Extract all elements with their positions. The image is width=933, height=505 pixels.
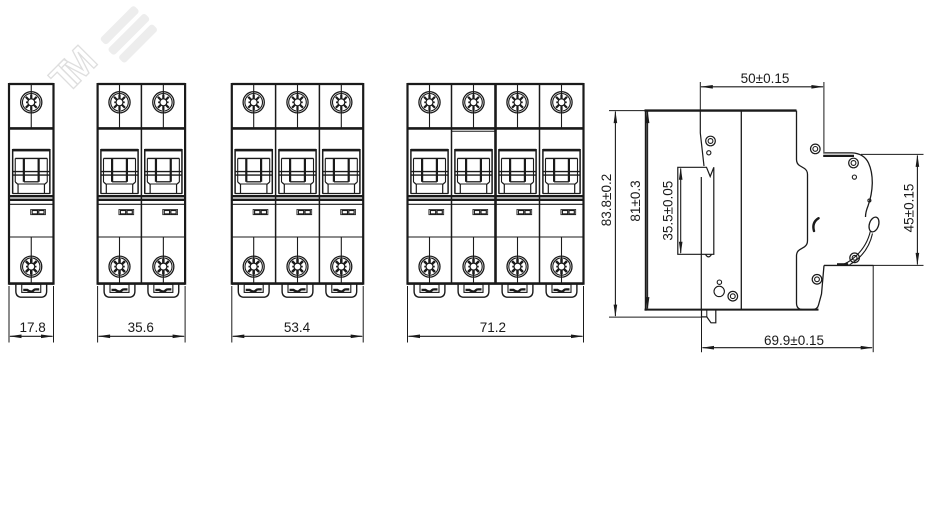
svg-text:83.8±0.2: 83.8±0.2	[599, 174, 614, 226]
svg-text:81±0.3: 81±0.3	[628, 180, 643, 221]
svg-text:69.9±0.15: 69.9±0.15	[764, 333, 824, 348]
svg-text:35.5±0.05: 35.5±0.05	[661, 181, 676, 241]
svg-text:17.8: 17.8	[19, 320, 45, 335]
svg-text:35.6: 35.6	[128, 320, 154, 335]
svg-text:50±0.15: 50±0.15	[741, 71, 790, 86]
svg-text:45±0.15: 45±0.15	[902, 184, 917, 233]
svg-text:53.4: 53.4	[284, 320, 311, 335]
svg-text:71.2: 71.2	[480, 320, 506, 335]
